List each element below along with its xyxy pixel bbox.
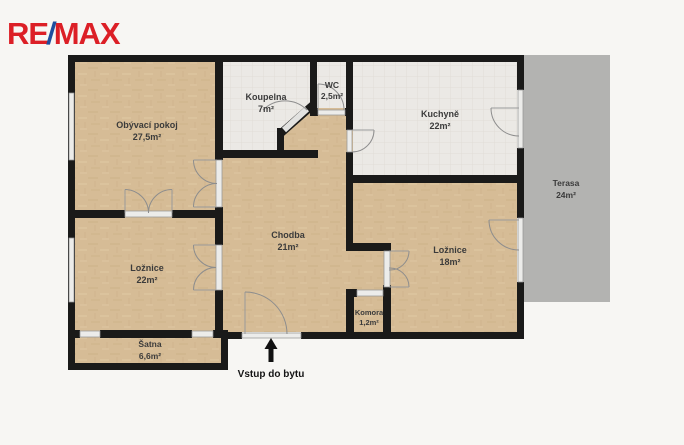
floorplan-canvas: RE/MAX	[0, 0, 684, 445]
room-area-loznice18: 18m²	[439, 257, 460, 267]
entrance-label: Vstup do bytu	[238, 369, 305, 380]
room-label-terasa: Terasa	[553, 178, 580, 188]
room-label-komora: Komora	[355, 308, 384, 317]
room-label-kuchyne: Kuchyně	[421, 109, 459, 119]
floorplan-svg: Obývací pokoj 27,5m² Koupelna 7m² WC 2,5…	[0, 0, 684, 445]
room-area-loznice22: 22m²	[136, 275, 157, 285]
room-label-obyvaci: Obývací pokoj	[116, 120, 178, 130]
entrance-arrow-icon	[265, 338, 278, 349]
room-area-koupelna: 7m²	[258, 104, 274, 114]
room-label-chodba: Chodba	[271, 230, 305, 240]
entrance-marker: Vstup do bytu	[238, 338, 305, 380]
window-living	[69, 93, 74, 160]
room-area-komora: 1,2m²	[359, 318, 379, 327]
room-label-wc: WC	[325, 80, 339, 90]
room-area-kuchyne: 22m²	[429, 121, 450, 131]
door-komora-sliding	[357, 290, 383, 296]
window-loznice22	[69, 238, 74, 302]
room-label-loznice18: Ložnice	[433, 245, 467, 255]
room-area-chodba: 21m²	[277, 242, 298, 252]
entrance-arrow-shaft	[269, 349, 274, 362]
room-label-koupelna: Koupelna	[245, 92, 287, 102]
room-label-satna: Šatna	[138, 338, 161, 349]
room-area-satna: 6,6m²	[139, 351, 161, 361]
room-label-loznice22: Ložnice	[130, 263, 164, 273]
room-area-obyvaci: 27,5m²	[133, 132, 162, 142]
room-area-wc: 2,5m²	[321, 91, 343, 101]
room-area-terasa: 24m²	[556, 190, 576, 200]
